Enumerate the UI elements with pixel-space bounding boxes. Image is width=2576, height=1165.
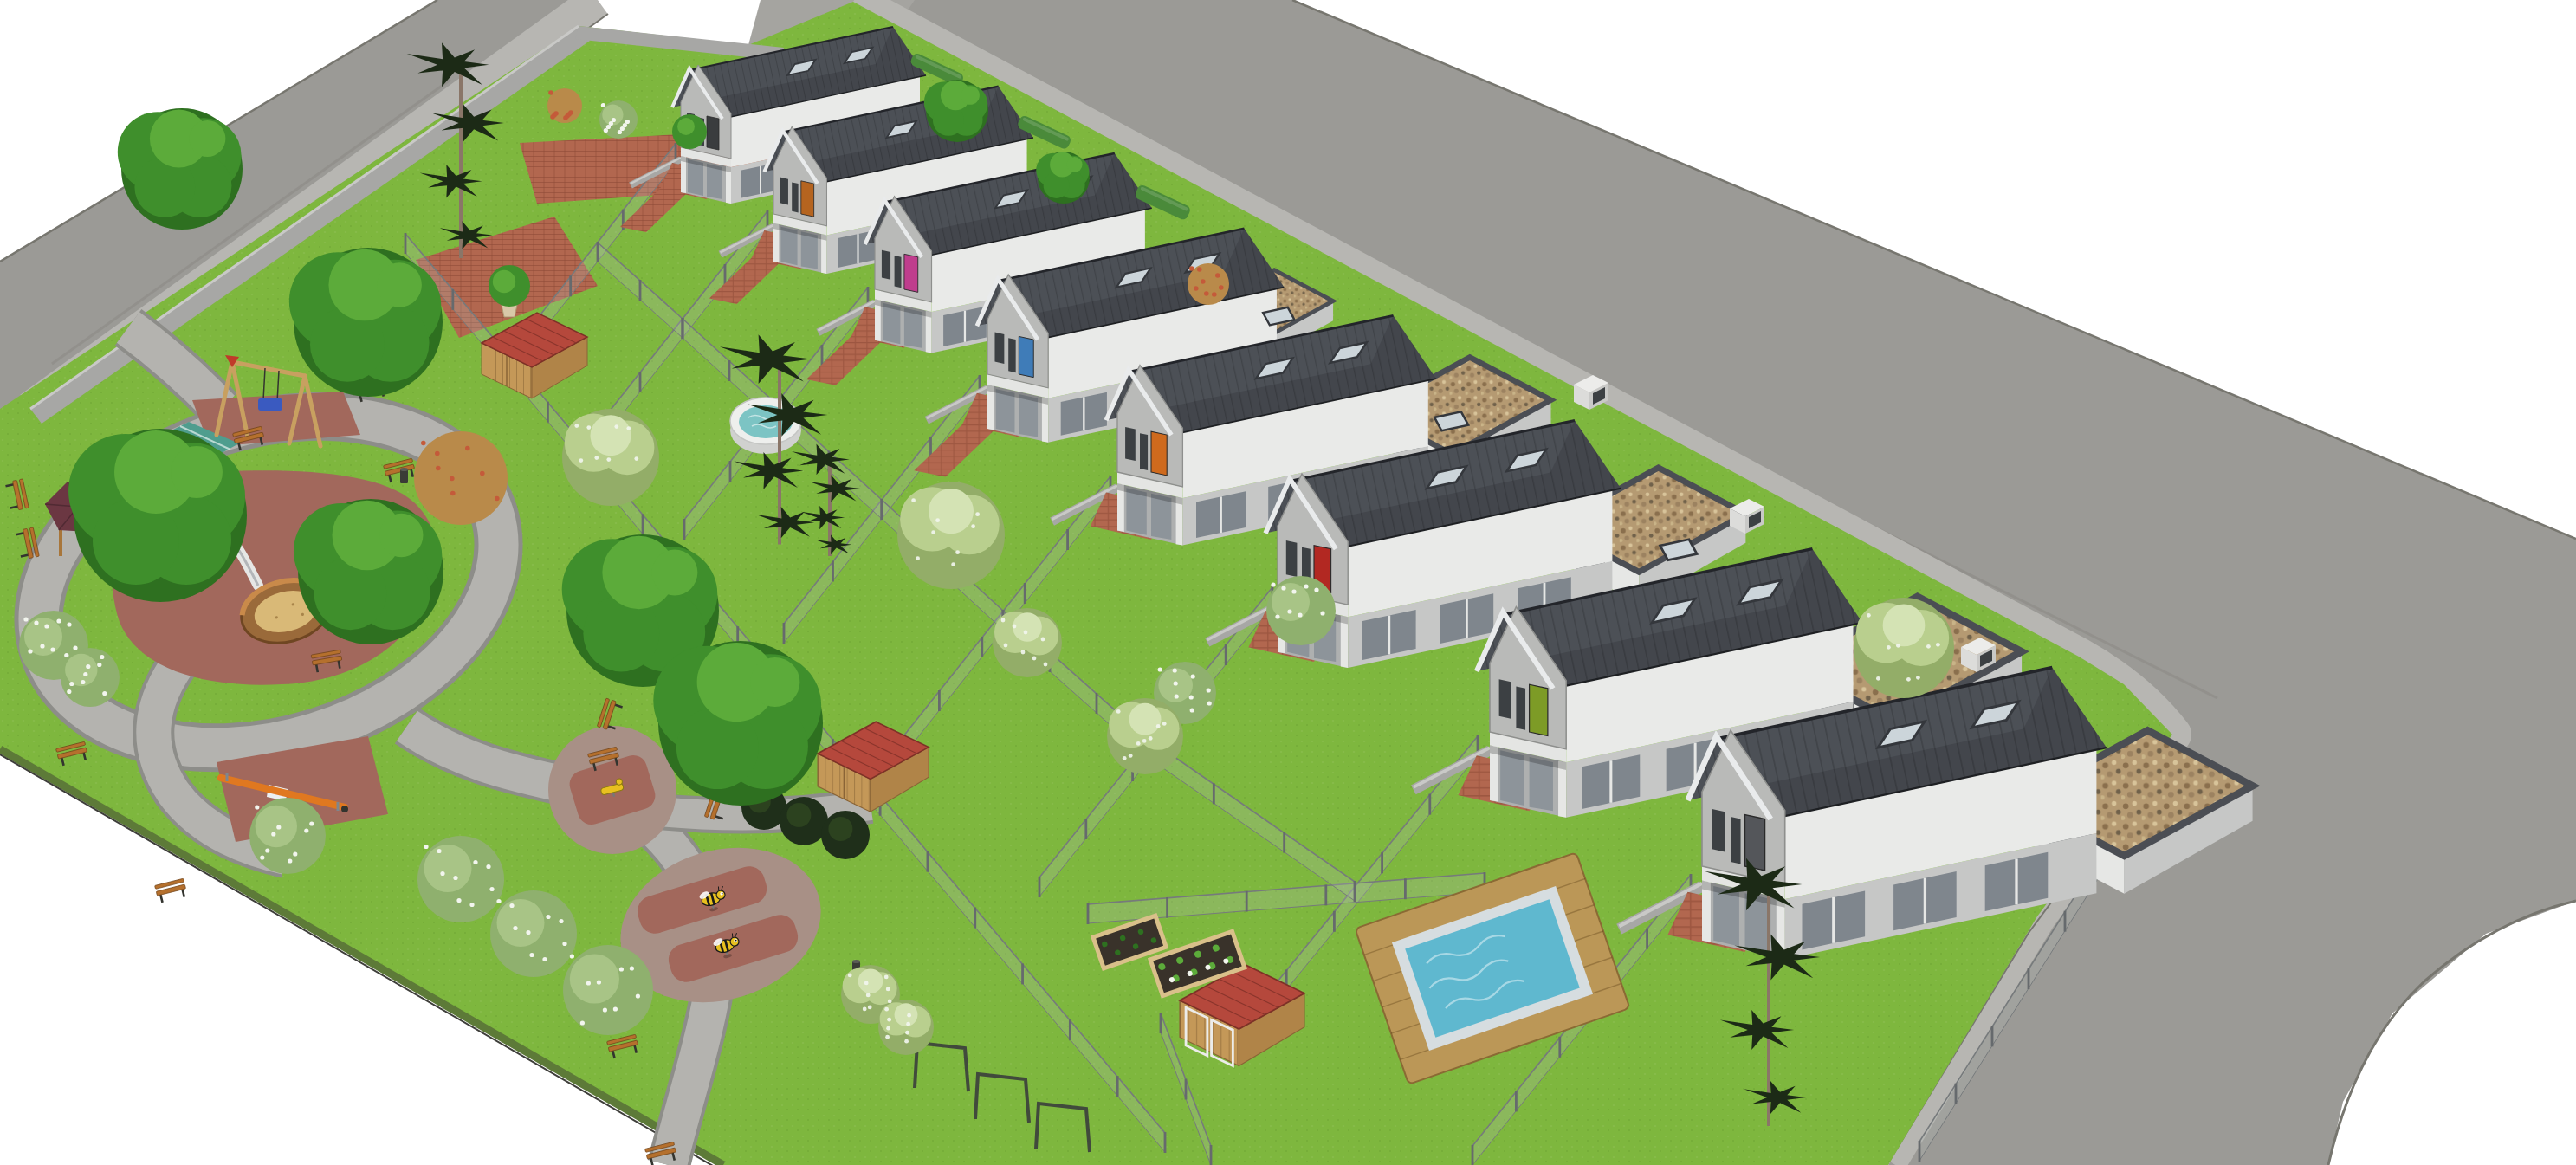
fence-post	[1210, 1145, 1213, 1165]
green-bush	[672, 114, 707, 149]
gable-window	[780, 178, 788, 205]
white-bush	[417, 836, 504, 922]
pale-tree	[993, 608, 1062, 677]
gable-window	[1516, 687, 1525, 730]
fence-post	[1225, 644, 1227, 665]
fence-post	[1246, 891, 1248, 912]
fence-post	[1096, 693, 1098, 714]
front-door	[1019, 336, 1033, 377]
fence-post	[1024, 583, 1026, 604]
gable-window	[1286, 540, 1298, 577]
fence-post	[1160, 1013, 1162, 1033]
fence-post	[2028, 968, 2030, 989]
gable-window	[994, 333, 1004, 364]
fence-post	[832, 561, 834, 582]
fence-post	[783, 623, 786, 644]
fence-post	[981, 637, 983, 657]
white-bush	[1266, 576, 1336, 645]
fence-post	[1021, 963, 1024, 984]
fence-post	[682, 318, 684, 339]
fence-post	[1166, 897, 1168, 918]
fence-post	[1991, 1026, 1994, 1046]
front-door	[801, 181, 814, 217]
gable-window	[1125, 427, 1136, 461]
front-door	[1151, 431, 1167, 476]
white-bush	[599, 100, 638, 139]
autumn-bush	[547, 88, 582, 123]
autumn-bush	[414, 431, 508, 525]
fence-post	[1354, 881, 1356, 902]
fence-post	[1185, 1079, 1188, 1100]
fence-post	[1515, 1091, 1518, 1111]
fence-post	[1039, 877, 1041, 897]
gable-window	[1008, 338, 1015, 372]
front-door	[707, 116, 719, 150]
fence-post	[724, 264, 727, 285]
pale-tree	[1854, 598, 1954, 698]
fence-post	[451, 289, 454, 310]
pale-tree	[878, 1000, 934, 1055]
fence-post	[1283, 832, 1285, 853]
fence-post	[1646, 929, 1648, 949]
white-bush	[61, 648, 120, 707]
fence-post	[1472, 1145, 1474, 1165]
gable-window	[1140, 433, 1148, 470]
fence-post	[1084, 819, 1087, 839]
fence-post	[569, 275, 572, 296]
fence-post	[1428, 794, 1431, 815]
autumn-bush	[1188, 263, 1229, 305]
fence-post	[728, 360, 731, 381]
gable-window	[895, 256, 902, 288]
pale-tree	[1107, 698, 1183, 774]
trash-bin	[400, 468, 408, 483]
fence-post	[729, 461, 732, 482]
fence-post	[1087, 903, 1090, 924]
fence-post	[1919, 1141, 1921, 1162]
fence-post	[1116, 1076, 1119, 1097]
fence-post	[2064, 911, 2067, 932]
white-bush	[490, 890, 577, 977]
front-door	[904, 254, 918, 292]
fence-post	[1213, 783, 1215, 804]
gable-window	[1499, 679, 1511, 719]
fence-post	[1069, 1019, 1071, 1040]
gable-window	[882, 250, 890, 280]
fence-post	[597, 242, 599, 262]
fence-post	[547, 402, 549, 423]
render-viewport	[0, 0, 2576, 1165]
site-plan-render	[0, 0, 2576, 1165]
fence-post	[1558, 1037, 1561, 1058]
fence-post	[1955, 1084, 1958, 1104]
fence-post	[927, 851, 929, 872]
pale-tree	[562, 409, 659, 506]
fence-post	[881, 499, 883, 520]
dark-bush	[821, 811, 870, 859]
gable-window	[1731, 817, 1741, 864]
fence-post	[974, 908, 976, 929]
fence-post	[1324, 884, 1327, 905]
gable-window	[1712, 809, 1725, 852]
dark-bush	[780, 797, 828, 845]
fence-post	[639, 280, 642, 301]
front-door	[1530, 684, 1548, 735]
gable-window	[792, 182, 798, 212]
fence-post	[642, 514, 644, 534]
fence-post	[405, 233, 407, 254]
fence-post	[1404, 878, 1407, 899]
white-bush	[249, 798, 326, 874]
fence-post	[683, 519, 686, 540]
fence-post	[938, 690, 941, 711]
fence-post	[1066, 529, 1069, 550]
fence-post	[1164, 1132, 1167, 1153]
fence-post	[821, 345, 824, 366]
fence-post	[639, 372, 642, 392]
fence-post	[1381, 852, 1383, 873]
white-bush	[563, 945, 653, 1035]
pale-tree	[897, 482, 1005, 589]
fence-post	[1333, 911, 1336, 932]
